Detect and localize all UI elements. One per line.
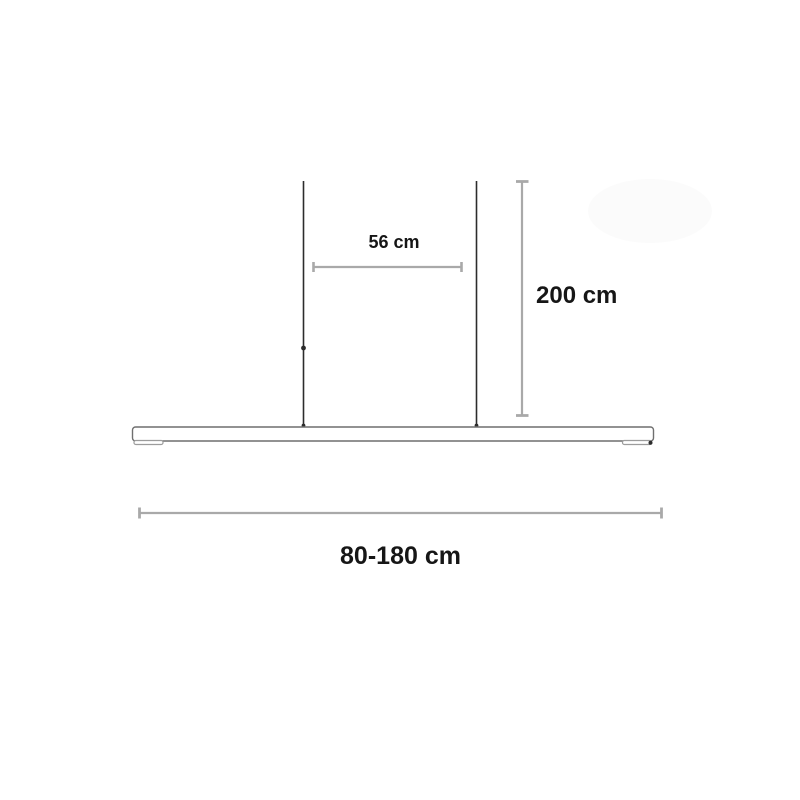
endcap-connector-dot [649,441,653,445]
suspension-height-label: 200 cm [536,283,617,308]
faint-background-blob [588,179,712,243]
lamp-length-label: 80-180 cm [139,543,662,569]
lamp-bar-endcap-left [134,441,163,445]
pendant-lamp-dimension-diagram: 56 cm 200 cm 80-180 cm [0,0,800,800]
cable-fittings [301,346,478,428]
lamp-bar-endcap-right [623,441,652,445]
cable-spacing-dimension [313,262,462,272]
cable-adjuster-bead [301,346,306,351]
suspension-cables [304,181,477,427]
dimension-diagram-canvas [0,0,800,800]
cable-spacing-label: 56 cm [313,233,475,252]
lamp-length-dimension [139,508,662,519]
lamp-bar [133,427,654,441]
suspension-height-dimension [516,182,529,416]
